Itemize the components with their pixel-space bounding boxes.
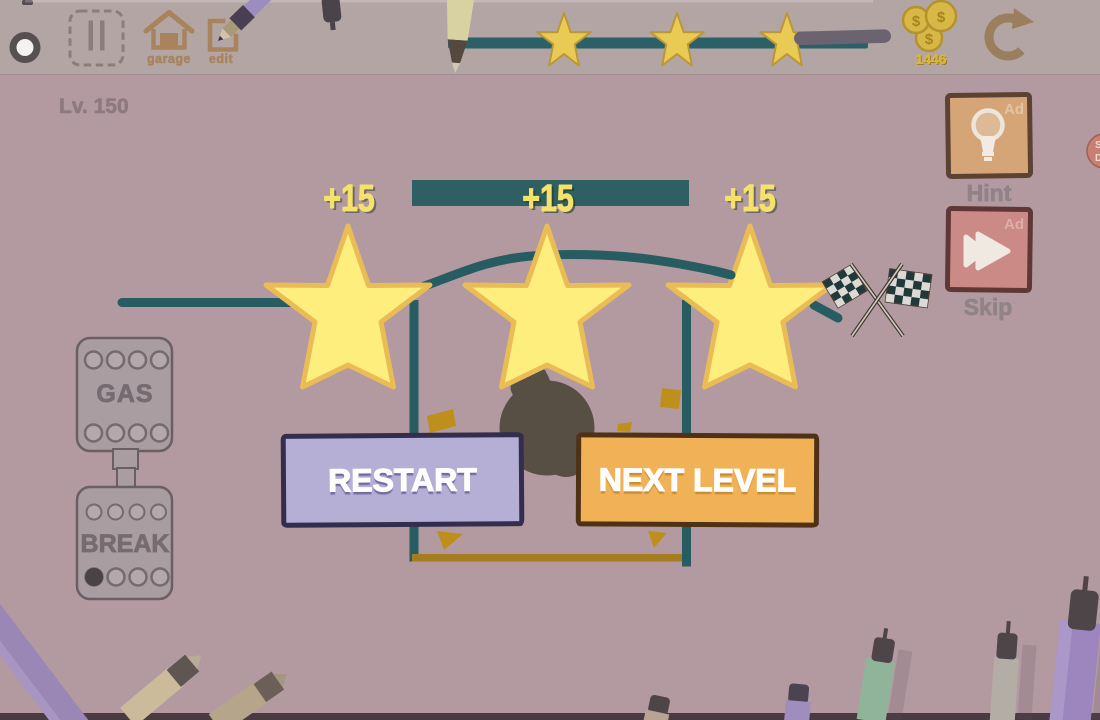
svg-text:$: $ (925, 31, 934, 48)
svg-text:S: S (1095, 140, 1100, 151)
svg-text:$: $ (937, 9, 946, 26)
svg-text:$: $ (912, 13, 921, 30)
svg-text:D: D (1095, 153, 1100, 164)
